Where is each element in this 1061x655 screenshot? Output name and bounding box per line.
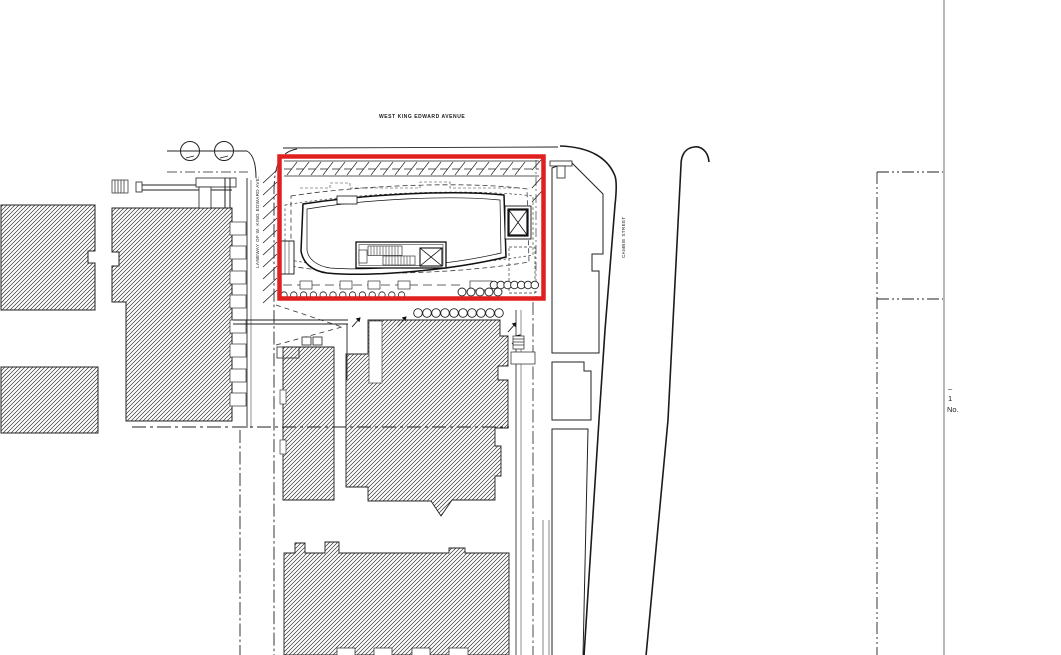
laneway-east <box>511 302 549 655</box>
site-plan-canvas: WEST KING EDWARD AVENUE LANEWAY OF W. KI… <box>0 0 1061 655</box>
roof-hatch-box <box>505 206 531 239</box>
frontage-building <box>552 161 603 353</box>
stair-icon <box>112 180 128 193</box>
building-core <box>356 242 446 268</box>
west-stair-cap <box>281 241 294 274</box>
curb-east <box>646 147 709 655</box>
revision-no-label: No. <box>947 405 959 414</box>
existing-building-midleft <box>112 178 246 421</box>
site-south-edge <box>281 281 539 298</box>
existing-building <box>283 347 334 500</box>
sheet-edge: – 1 No. <box>877 0 959 655</box>
roof-notch <box>337 196 357 204</box>
adjacent-parcel-dashdot <box>877 172 943 655</box>
laneway-label: LANEWAY OF W. KING EDWARD AVE. <box>255 176 260 268</box>
revision-number: 1 <box>948 394 952 403</box>
existing-building <box>1 367 98 433</box>
revision-strip: – 1 No. <box>947 384 959 414</box>
revision-dash: – <box>948 384 953 393</box>
existing-building <box>1 205 95 310</box>
entry-canopy <box>136 178 236 208</box>
laneway-hatch-marks <box>263 170 277 303</box>
existing-buildings-west <box>1 205 98 433</box>
elevator-shaft <box>420 248 442 266</box>
site-north-band <box>284 161 539 176</box>
cambie-street-label: CAMBIE STREET <box>621 216 626 258</box>
frontage-building <box>552 429 588 655</box>
stair-icon <box>511 336 535 364</box>
frontage-building <box>552 362 591 420</box>
proposed-site <box>280 157 544 299</box>
street-top-label: WEST KING EDWARD AVENUE <box>379 114 465 120</box>
existing-building <box>284 542 509 655</box>
site-east-hatch-marks <box>532 159 542 202</box>
street-tree-row-icon <box>414 309 504 318</box>
street-west-king-edward: WEST KING EDWARD AVENUE <box>167 114 558 178</box>
site-plan-sheet: WEST KING EDWARD AVENUE LANEWAY OF W. KI… <box>0 0 1061 655</box>
cambie-street: CAMBIE STREET <box>550 146 709 655</box>
